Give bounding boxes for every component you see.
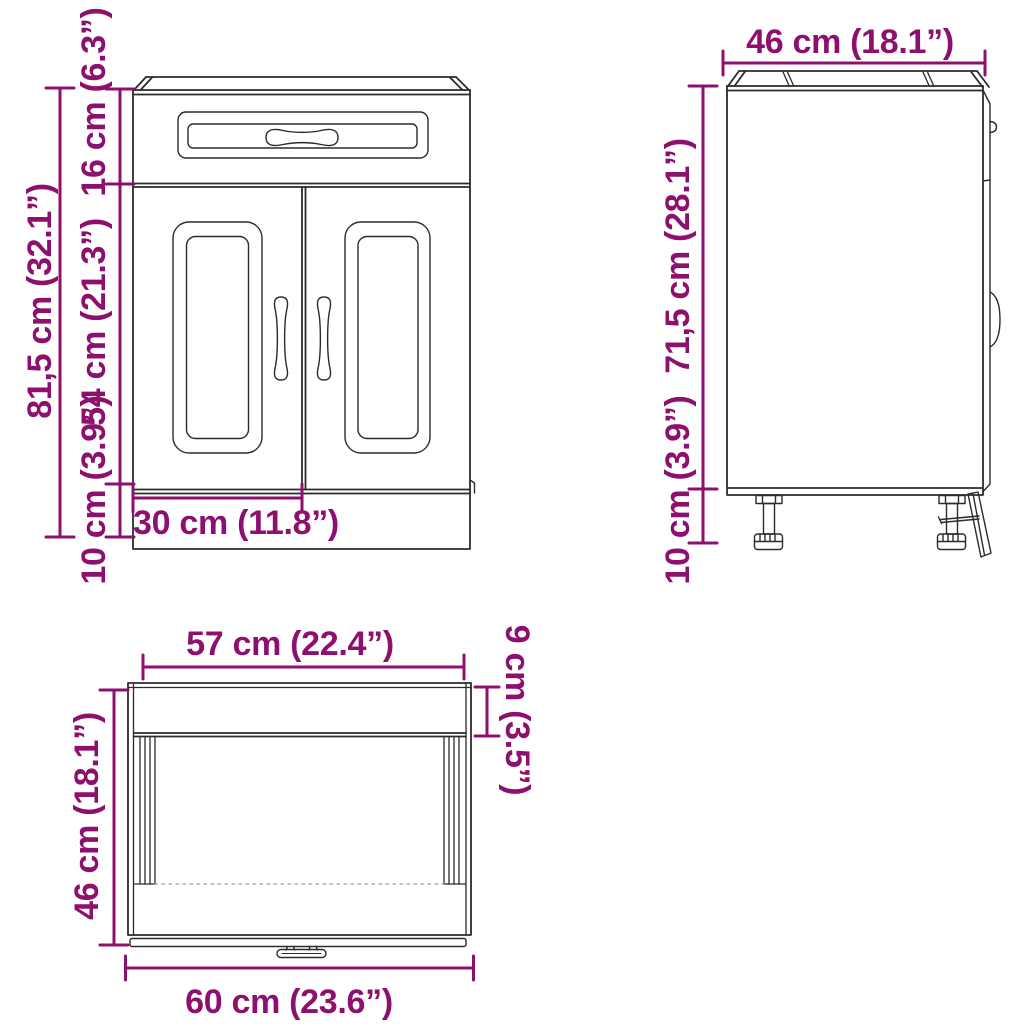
dim-top-depth: 46 cm (18.1”) (70, 712, 104, 920)
dim-top-inner-width: 57 cm (22.4”) (186, 627, 394, 661)
dim-front-door-width: 30 cm (11.8”) (133, 506, 339, 540)
dim-side-body-height: 71,5 cm (28.1”) (661, 138, 695, 374)
side-view-drawing (727, 71, 1000, 557)
dim-front-total-height: 81,5 cm (32.1”) (23, 183, 57, 419)
dim-side-leg-height: 10 cm (3.9”) (661, 395, 695, 584)
front-view-drawing (133, 77, 475, 549)
dim-side-depth: 46 cm (18.1”) (746, 25, 954, 59)
top-view-drawing (128, 683, 471, 958)
dim-top-total-width: 60 cm (23.6”) (185, 985, 393, 1019)
dim-front-base-height: 10 cm (3.9”) (77, 395, 111, 584)
dim-front-drawer-height: 16 cm (6.3”) (77, 7, 111, 196)
dim-top-rail-depth: 9 cm (3.5”) (500, 625, 534, 796)
cabinet-dimension-diagram: 81,5 cm (32.1”) 16 cm (6.3”) 54 cm (21.3… (0, 0, 1024, 1024)
side-view-dimension-lines (689, 51, 985, 543)
top-view-dimension-lines (100, 655, 499, 980)
